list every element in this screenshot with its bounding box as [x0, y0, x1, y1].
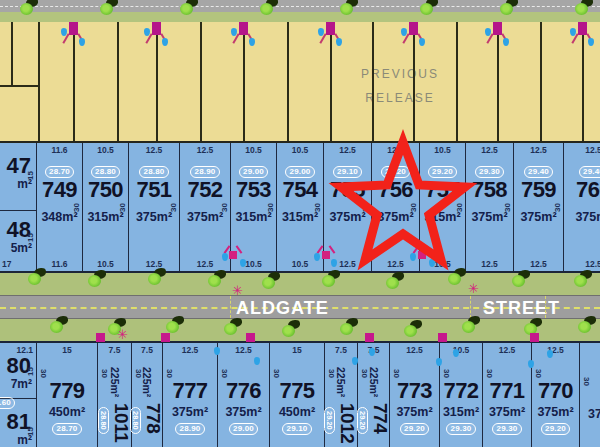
road-service-dash [470, 296, 471, 318]
boundary-marker-icon [96, 333, 105, 342]
water-drop-icon [162, 38, 168, 46]
lot-boundary-line [38, 22, 40, 141]
bottom-lot-row: 12.1 80 7m² 15 28.60 81 m² 15 1530779450… [0, 341, 600, 447]
lot-label-group: 28.801011 [98, 403, 132, 442]
price-badge: 28.80 [130, 407, 141, 434]
lot-area: 375m² [187, 210, 223, 224]
frontage-dim-bottom: 10.5 [83, 259, 128, 269]
depth-dim: 30 [455, 203, 464, 212]
depth-dim: 30 [534, 369, 543, 378]
sewer-marker-icon [69, 22, 78, 35]
water-drop-icon [79, 38, 85, 46]
lot-number: 775 [279, 379, 314, 403]
lot-774[interactable]: 7.530225m²29.20774 [358, 343, 390, 447]
lot-boundary-line [11, 22, 13, 85]
frontage-dim-top: 12.5 [197, 145, 214, 155]
road-service-dash [545, 296, 546, 318]
lot-area: 375m² [537, 405, 573, 419]
lot-number: 773 [397, 379, 432, 403]
frontage-dim-top: 10.5 [245, 145, 262, 155]
lot-776[interactable]: 12.530776375m²29.00 [218, 343, 270, 447]
lot-number: 1012 [336, 403, 358, 443]
lot-area: 450m² [279, 405, 315, 419]
lot-number: 756 [378, 178, 413, 202]
lot-773[interactable]: 12.530773375m²29.20 [390, 343, 440, 447]
lot-area: 375m² [520, 210, 556, 224]
lot-758[interactable]: 12.529.3075830375m²12.5 [466, 143, 514, 271]
frontage-dim-bottom: 12.5 [564, 259, 600, 269]
sewer-marker-icon [326, 22, 335, 35]
lot-boundary-line [200, 22, 202, 141]
lot-number: 1011 [110, 403, 132, 442]
price-badge: 29.30 [446, 423, 475, 435]
boundary-marker-icon [438, 333, 447, 342]
lot-number: 772 [443, 379, 478, 403]
price-badge: 29.20 [400, 423, 429, 435]
frontage-dim-bottom: 12.5 [514, 259, 563, 269]
lot-area: 375m² [575, 210, 600, 224]
lot-boundary-line [330, 22, 332, 141]
lot-boundary-line [287, 22, 289, 141]
frontage-dim-top: 12.5 [585, 145, 600, 155]
frontage-dim-bottom: 12.5 [180, 259, 230, 269]
price-badge: 29.20 [357, 407, 368, 434]
lot-749[interactable]: 11.628.7074930348m²11.6 [37, 143, 83, 271]
streetlight-icon [117, 328, 128, 341]
previous-release-line2: RELEASE [330, 86, 470, 110]
lot-boundary-line [413, 22, 415, 141]
frontage-dim-top: 12.5 [146, 145, 163, 155]
lot-757[interactable]: 10.529.2075730315m²10.5 [420, 143, 466, 271]
lot-number: 754 [282, 178, 317, 202]
lot-number: 753 [236, 178, 271, 202]
lot-772[interactable]: 10.530772315m²29.30 [440, 343, 483, 447]
frontage-dim-bottom: 12.5 [466, 259, 513, 269]
depth-dim: 15 [26, 427, 35, 436]
lot-area: 375m² [377, 210, 413, 224]
lot-area: 375m² [136, 210, 172, 224]
lot-boundary-line [456, 22, 458, 141]
lot-number: 750 [88, 178, 123, 202]
lot-boundary-line [372, 22, 374, 141]
lot-779[interactable]: 1530779450m²28.70 [37, 343, 98, 447]
lot-area: 375m² [489, 405, 525, 419]
frontage-dim-top: 7.5 [141, 345, 153, 355]
frontage-dim-top: 12.5 [182, 345, 199, 355]
streetlight-icon [468, 282, 479, 295]
frontage-dim-bottom: 12.5 [129, 259, 179, 269]
lot-number: 776 [226, 379, 261, 403]
price-badge: 29.20 [324, 407, 335, 434]
water-drop-icon [336, 38, 342, 46]
lot-boundary-line [540, 22, 542, 141]
depth-dim: 30 [392, 369, 401, 378]
lot-number: 760 [576, 178, 600, 202]
depth-dim: 30 [165, 369, 174, 378]
frontage-dim-top: 10.5 [434, 145, 451, 155]
frontage-dim-top: 11.6 [51, 145, 67, 155]
lot-number: 779 [49, 379, 84, 403]
lot-area: 375m² [588, 407, 600, 421]
lot-area: 315m² [87, 210, 123, 224]
sewer-marker-icon [578, 22, 587, 35]
street-verge-lower [0, 319, 600, 341]
depth-dim: 30 [313, 203, 322, 212]
depth-dim: 30 [272, 369, 281, 378]
lot-number: 774 [369, 403, 391, 433]
sewer-marker-icon [239, 22, 248, 35]
frontage-dim-top: 15 [292, 345, 301, 355]
lot-number: 755 [330, 178, 365, 202]
frontage-dim-bottom: 11.6 [37, 259, 82, 269]
sewer-marker-icon [493, 22, 502, 35]
lot-area: 450m² [49, 405, 85, 419]
lot-area: 375m² [225, 405, 261, 419]
frontage-dim-top: 15 [62, 345, 71, 355]
frontage-dim-top: 12.5 [339, 145, 356, 155]
lot-area: 225m² [368, 367, 380, 397]
frontage-dim-top: 12.5 [481, 145, 498, 155]
depth-dim: 30 [220, 203, 229, 212]
lot-753[interactable]: 10.529.0075330315m²10.5 [231, 143, 277, 271]
frontage-dim-top: 12.5 [387, 145, 404, 155]
lot-area: 7m² [0, 377, 36, 391]
hydrant-marker-icon [229, 251, 237, 259]
lot-label-group: 29.20774 [357, 403, 391, 434]
estate-map: PREVIOUS RELEASE 47 m² 15 0 48 5m² 15 0 … [0, 0, 600, 447]
streetlight-icon [232, 284, 243, 297]
frontage-dim-top: 10.5 [292, 145, 309, 155]
lot-number: 770 [538, 379, 573, 403]
boundary-marker-icon [161, 333, 170, 342]
frontage-dim-bottom: 10.5 [420, 259, 465, 269]
lot-780-781-partial[interactable]: 12.1 80 7m² 15 28.60 81 m² 15 [0, 343, 37, 447]
lot-number: 752 [187, 178, 222, 202]
hydrant-marker-icon [418, 251, 426, 259]
depth-dim: 30 [582, 377, 591, 386]
lot-778[interactable]: 7.530225m²28.80778 [132, 343, 163, 447]
lot-759[interactable]: 12.529.4075930375m²12.5 [514, 143, 564, 271]
depth-dim: 30 [220, 369, 229, 378]
frontage-dim-top: 10.5 [97, 145, 114, 155]
hydrant-marker-icon [322, 251, 330, 259]
water-drop-icon [419, 38, 425, 46]
frontage-dim-top: 12.5 [530, 145, 547, 155]
lot-number: 749 [42, 178, 77, 202]
price-badge: 28.70 [52, 423, 81, 435]
street-verge-upper [0, 271, 600, 295]
lot-area: 375m² [471, 210, 507, 224]
lot-area: 225m² [335, 367, 347, 397]
lot-number: 778 [142, 403, 164, 433]
lot-number: 751 [136, 178, 171, 202]
aldgate-street-road: ALDGATE STREET [0, 295, 600, 319]
previous-release-line1: PREVIOUS [330, 62, 470, 86]
lot-area: 315m² [443, 405, 479, 419]
previous-release-lots: PREVIOUS RELEASE [0, 22, 600, 143]
water-drop-icon [249, 38, 255, 46]
lot-area: 5m² [0, 241, 36, 255]
depth-dim: 30 [39, 369, 48, 378]
top-lot-row: 47 m² 15 0 48 5m² 15 0 17 11.628.7074930… [0, 143, 600, 271]
depth-dim: 30 [134, 369, 143, 378]
lot-number: 759 [521, 178, 556, 202]
top-road [0, 0, 600, 12]
lot-number: 757 [425, 178, 460, 202]
depth-dim: 15 [26, 171, 35, 180]
lot-1011[interactable]: 7.530225m²28.801011 [98, 343, 132, 447]
lot-area: 225m² [109, 367, 121, 397]
depth-dim: 30 [442, 369, 451, 378]
depth-dim: 15 [26, 367, 35, 376]
lot-area: 315m² [282, 210, 318, 224]
lot-partial-right[interactable]: 30375m² [580, 343, 600, 447]
street-name-street: STREET [483, 298, 560, 319]
depth-dim: 30 [553, 203, 562, 212]
lot-777[interactable]: 12.530777375m²28.90 [163, 343, 218, 447]
lot-boundary-line [156, 22, 158, 141]
frontage-dim-bottom: 10.5 [231, 259, 276, 269]
price-badge: 29.10 [282, 423, 311, 435]
lot-area: 315m² [424, 210, 460, 224]
lot-label-group: 28.80778 [130, 403, 164, 434]
lot-775[interactable]: 1530775450m²29.10 [270, 343, 325, 447]
lot-number: 777 [172, 379, 207, 403]
lot-760[interactable]: 12.529.4076030375m²12.5 [564, 143, 600, 271]
previous-release-label: PREVIOUS RELEASE [330, 62, 470, 110]
lot-label-group: 29.201012 [324, 403, 358, 443]
frontage-dim-top: 12.5 [406, 345, 423, 355]
water-drop-icon [588, 38, 594, 46]
frontage-dim-top: 12.5 [235, 345, 252, 355]
depth-dim: 30 [266, 203, 275, 212]
boundary-marker-icon [246, 333, 255, 342]
depth-dim: 15 [26, 233, 35, 242]
top-verge [0, 12, 600, 22]
boundary-marker-icon [530, 333, 539, 342]
sewer-marker-icon [409, 22, 418, 35]
corner-dim: 17 [2, 259, 11, 269]
lot-747-748-partial[interactable]: 47 m² 15 0 48 5m² 15 0 17 [0, 143, 37, 271]
depth-dim: 30 [485, 369, 494, 378]
lot-771[interactable]: 12.530771375m²29.30 [483, 343, 532, 447]
depth-dim: 30 [100, 369, 109, 378]
price-badge: 29.20 [541, 423, 570, 435]
depth-dim: 30 [360, 369, 369, 378]
lot-750[interactable]: 10.528.8075030315m²10.5 [83, 143, 129, 271]
frontage-dim-top: 7.5 [109, 345, 121, 355]
depth-dim: 30 [503, 203, 512, 212]
depth-dim: 30 [327, 369, 336, 378]
depth-dim: 30 [118, 203, 127, 212]
lot-boundary-line [582, 22, 584, 141]
water-drop-icon [503, 38, 509, 46]
lot-755[interactable]: 12.529.1075530375m²12.5 [324, 143, 372, 271]
depth-dim: 30 [361, 203, 370, 212]
sewer-marker-icon [152, 22, 161, 35]
price-badge: 28.80 [98, 407, 109, 434]
depth-dim: 30 [409, 203, 418, 212]
boundary-marker-icon [365, 333, 374, 342]
frontage-dim-top: 12.5 [499, 345, 516, 355]
lot-boundary-line [0, 85, 38, 87]
lot-area: 315m² [235, 210, 271, 224]
lot-number: 771 [489, 379, 524, 403]
lot-770[interactable]: 12.530770375m²29.20 [532, 343, 580, 447]
lot-area: 375m² [172, 405, 208, 419]
lot-number: 758 [472, 178, 507, 202]
lot-boundary-line [73, 22, 75, 141]
lot-boundary-line [117, 22, 119, 141]
street-name-aldgate: ALDGATE [236, 298, 329, 319]
price-badge: 29.30 [492, 423, 521, 435]
lot-area: 375m² [329, 210, 365, 224]
frontage-dim-top: 7.5 [335, 345, 347, 355]
road-service-dash [230, 296, 231, 318]
lot-boundary-line [497, 22, 499, 141]
lot-area: 348m² [41, 210, 77, 224]
lot-751[interactable]: 12.528.8075130375m²12.5 [129, 143, 180, 271]
price-badge: 29.00 [229, 423, 258, 435]
lot-boundary-line [243, 22, 245, 141]
depth-dim: 30 [169, 203, 178, 212]
price-badge: 28.90 [175, 423, 204, 435]
lot-area: 375m² [396, 405, 432, 419]
depth-dim: 30 [72, 203, 81, 212]
